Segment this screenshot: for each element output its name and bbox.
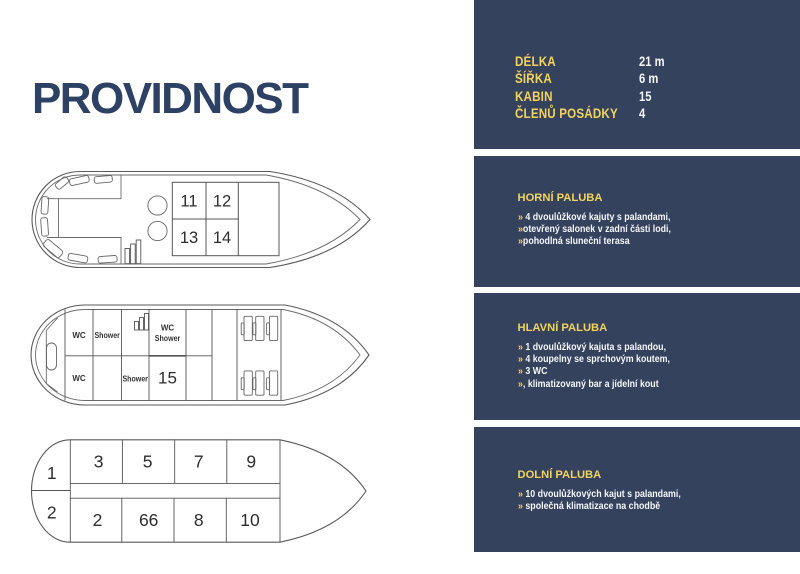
svg-text:WC: WC xyxy=(72,331,86,340)
svg-text:2: 2 xyxy=(47,502,57,522)
svg-text:Shower: Shower xyxy=(122,374,148,383)
svg-text:1: 1 xyxy=(47,463,57,483)
svg-text:8: 8 xyxy=(194,510,204,530)
svg-text:3: 3 xyxy=(94,452,104,472)
svg-text:Shower: Shower xyxy=(155,334,181,343)
svg-text:12: 12 xyxy=(213,193,231,211)
svg-text:7: 7 xyxy=(194,452,204,472)
svg-text:15: 15 xyxy=(158,369,177,388)
svg-text:10: 10 xyxy=(240,510,260,530)
svg-text:Shower: Shower xyxy=(94,331,120,340)
svg-text:9: 9 xyxy=(246,452,256,472)
svg-text:5: 5 xyxy=(143,452,153,472)
svg-text:11: 11 xyxy=(180,193,197,211)
svg-text:13: 13 xyxy=(180,229,198,247)
svg-text:WC: WC xyxy=(72,374,86,383)
svg-text:66: 66 xyxy=(139,510,158,530)
svg-text:14: 14 xyxy=(213,229,231,247)
svg-text:WC: WC xyxy=(161,324,175,333)
svg-text:2: 2 xyxy=(93,510,103,530)
